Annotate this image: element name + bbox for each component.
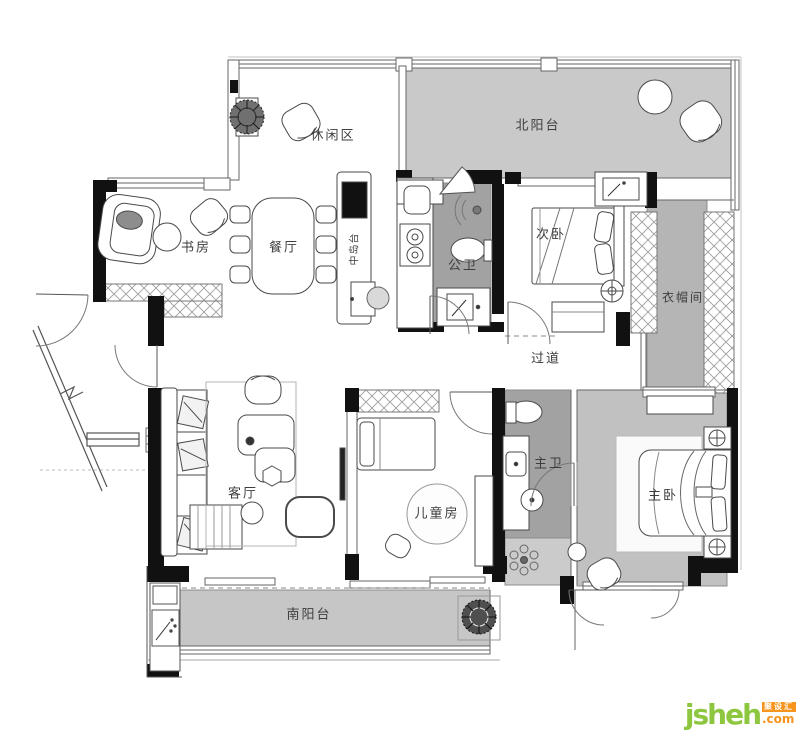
cloak-wardrobe-right: [704, 212, 734, 393]
nightstand-icon: [704, 536, 731, 558]
floors-layer: [164, 64, 733, 648]
wall-bedroom2-corner: [616, 312, 630, 346]
room-label-north-balcony: 北阳台: [515, 115, 560, 134]
wall-living-kids-top: [345, 388, 359, 412]
kids-desk-icon: [475, 476, 493, 566]
window-mullion-2: [541, 58, 557, 71]
room-label-public-bath: 公卫: [448, 255, 478, 274]
floor-plan-page: 休闲区 北阳台 书房 餐厅 中岛台 公卫 次卧 衣帽间 过道 客厅 儿童房 主卫…: [0, 0, 800, 731]
room-label-master-bedroom: 主卧: [648, 485, 678, 504]
watermark-cn-name: 聚设汇: [762, 702, 796, 712]
room-label-island: 中岛台: [346, 233, 361, 266]
wall-study-corner: [93, 180, 117, 192]
plant-icon: [462, 600, 496, 634]
bedroom2-door-arc: [508, 302, 550, 344]
study-cabinet-2: [164, 301, 222, 317]
window-column-block: [230, 80, 238, 93]
study-sofa-icon: [96, 192, 163, 265]
wall-hall-step: [148, 296, 164, 346]
living-bench-icon: [190, 505, 242, 549]
pillow: [594, 243, 614, 275]
kids-bed-icon: [357, 418, 435, 470]
room-label-living: 客厅: [228, 483, 258, 502]
utility-shelf: [153, 586, 177, 604]
sliding-door-2: [350, 581, 430, 588]
room-label-kids-room: 儿童房: [414, 503, 459, 522]
entry-structure: [33, 326, 139, 491]
kids-chair-icon: [383, 531, 414, 560]
balcony-divider-window: [399, 66, 406, 178]
dining-chair-icon: [230, 266, 250, 283]
room-label-master-bath: 主卫: [534, 453, 564, 472]
master-console-icon: [647, 396, 713, 414]
utility-closet: [147, 566, 182, 677]
shower-head-icon: [473, 206, 481, 214]
hall-door-arc: [115, 345, 157, 387]
study-armchair-icon: [186, 195, 231, 240]
living-pouf-icon: [286, 497, 334, 537]
coffee-table-icon: [238, 415, 295, 486]
utility-dot-2: [174, 625, 176, 627]
watermark-brand: jsheh: [685, 704, 760, 725]
island-sink: [342, 182, 367, 218]
pillow: [711, 497, 727, 532]
room-label-corridor: 过道: [531, 348, 561, 367]
kids-wardrobe: [357, 390, 439, 412]
break-mark: [60, 387, 83, 399]
jsheh-watermark: jsheh 聚设汇 .com: [685, 702, 796, 725]
balcony-table-icon: [638, 80, 672, 114]
wall-master-step-b: [688, 571, 701, 586]
room-label-cloakroom: 衣帽间: [662, 289, 704, 306]
room-label-dining: 餐厅: [269, 237, 299, 256]
dining-chair-icon: [230, 206, 250, 223]
second-bedroom-bed-icon: [532, 206, 624, 286]
entry-diagonal-b: [33, 330, 102, 491]
basin-niche-icon: [595, 172, 647, 206]
bedroom2-window: [518, 178, 596, 186]
south-exit-door-arc-2: [651, 590, 679, 618]
island-stool-icon: [367, 287, 389, 309]
cloak-wardrobe-left: [631, 212, 657, 333]
study-top-cabinet: [204, 178, 230, 190]
dining-chair-icon: [230, 236, 250, 253]
side-table-hex: [263, 466, 281, 486]
room-label-south-balcony: 南阳台: [286, 604, 331, 623]
room-label-second-bedroom: 次卧: [536, 224, 566, 243]
living-armchair-icon: [245, 376, 281, 404]
room-label-leisure: 休闲区: [310, 125, 355, 144]
living-stool-icon: [241, 502, 263, 524]
kids-door-arc: [450, 392, 492, 434]
sliding-door-3: [430, 577, 485, 583]
master-side-table-icon: [568, 543, 586, 561]
floor-lamp-icon: [246, 437, 254, 445]
pillow: [711, 455, 727, 490]
nightstand-icon: [704, 427, 731, 449]
dining-chair-icon: [316, 266, 336, 283]
study-round-table-icon: [153, 223, 181, 251]
watermark-suffix: .com: [762, 713, 794, 725]
wall-bath-east: [492, 184, 504, 314]
floor-plan-drawing: [0, 0, 800, 731]
pillow: [360, 422, 374, 466]
room-label-study: 书房: [181, 237, 211, 256]
ceiling-fan-icon: [601, 280, 623, 302]
bedroom2-dresser-icon: [552, 302, 604, 332]
plant-icon: [230, 100, 264, 134]
sliding-door-1: [205, 578, 275, 585]
utility-dot-1: [171, 619, 173, 621]
wall-living-kids-bottom: [345, 554, 359, 580]
entry-diagonal-a: [38, 326, 107, 487]
tv-icon: [340, 448, 345, 500]
dining-chair-icon: [316, 236, 336, 253]
utility-dot-3: [170, 630, 172, 632]
dining-chair-icon: [316, 206, 336, 223]
wall-utility-top: [147, 566, 189, 582]
south-exit-door-arc: [569, 590, 604, 625]
mbath-vanity-icon: [503, 436, 529, 530]
wall-bedroom2-top: [505, 172, 521, 184]
